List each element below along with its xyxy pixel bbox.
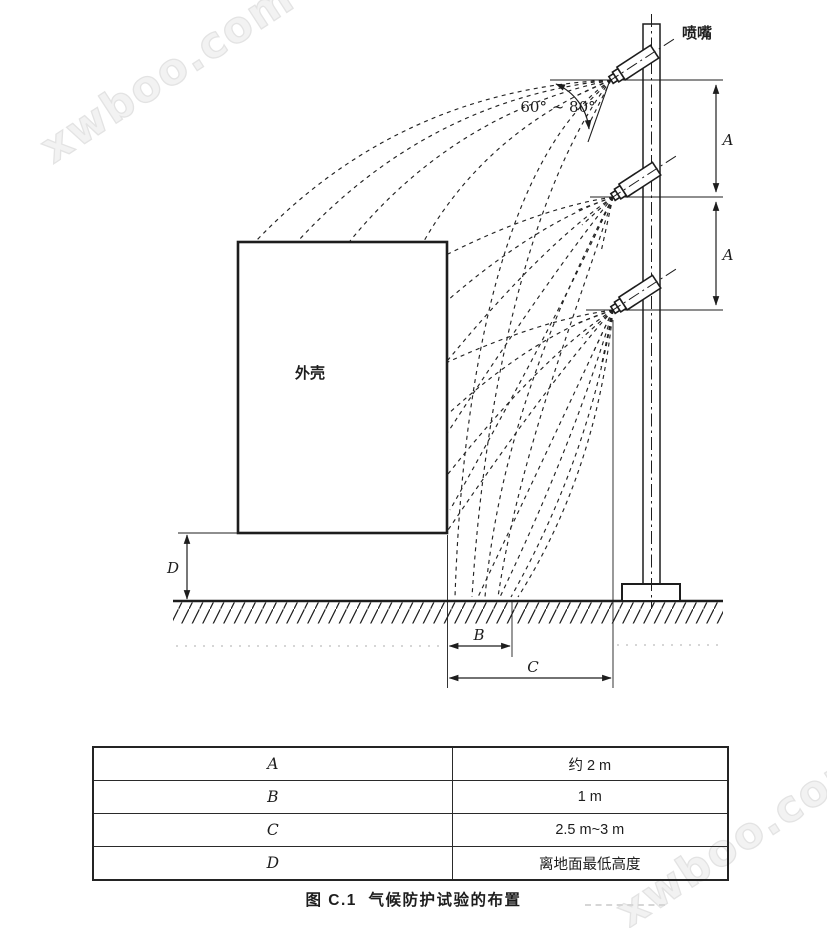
ground-hatch (173, 603, 723, 624)
faint-dotted-line (176, 645, 722, 646)
table-row: D 离地面最低高度 (93, 847, 728, 881)
dimension-a-lower-label: A (721, 246, 734, 264)
value-cell: 2.5 m~3 m (452, 814, 728, 847)
param-cell: A (93, 747, 452, 781)
param-cell: B (93, 781, 452, 814)
table-row: B 1 m (93, 781, 728, 814)
nozzle-label: 喷嘴 (682, 24, 712, 42)
dimension-a-upper-label: A (721, 131, 734, 149)
value-cell: 离地面最低高度 (452, 847, 728, 881)
table-row: C 2.5 m~3 m (93, 814, 728, 847)
param-cell: C (93, 814, 452, 847)
param-cell: D (93, 847, 452, 881)
dimension-d-label: D (166, 559, 179, 577)
value-cell: 1 m (452, 781, 728, 814)
angle-label: 60° ~ 80° (520, 98, 595, 116)
dimension-b-label: B (472, 626, 484, 644)
figure-page: xwboo.com xwboo.com (0, 0, 827, 928)
test-arrangement-diagram: 外壳 (0, 0, 827, 740)
table-row: A 约 2 m (93, 747, 728, 781)
value-cell: 约 2 m (452, 747, 728, 781)
spray-arcs-bottom-nozzle (448, 310, 613, 597)
enclosure-box (238, 242, 447, 533)
dimension-c-label: C (527, 658, 539, 676)
parameter-table: A 约 2 m B 1 m C 2.5 m~3 m D 离地面最低高度 (92, 746, 729, 881)
figure-caption: 图 C.1 气候防护试验的布置 (0, 888, 827, 910)
enclosure-label: 外壳 (294, 364, 325, 382)
